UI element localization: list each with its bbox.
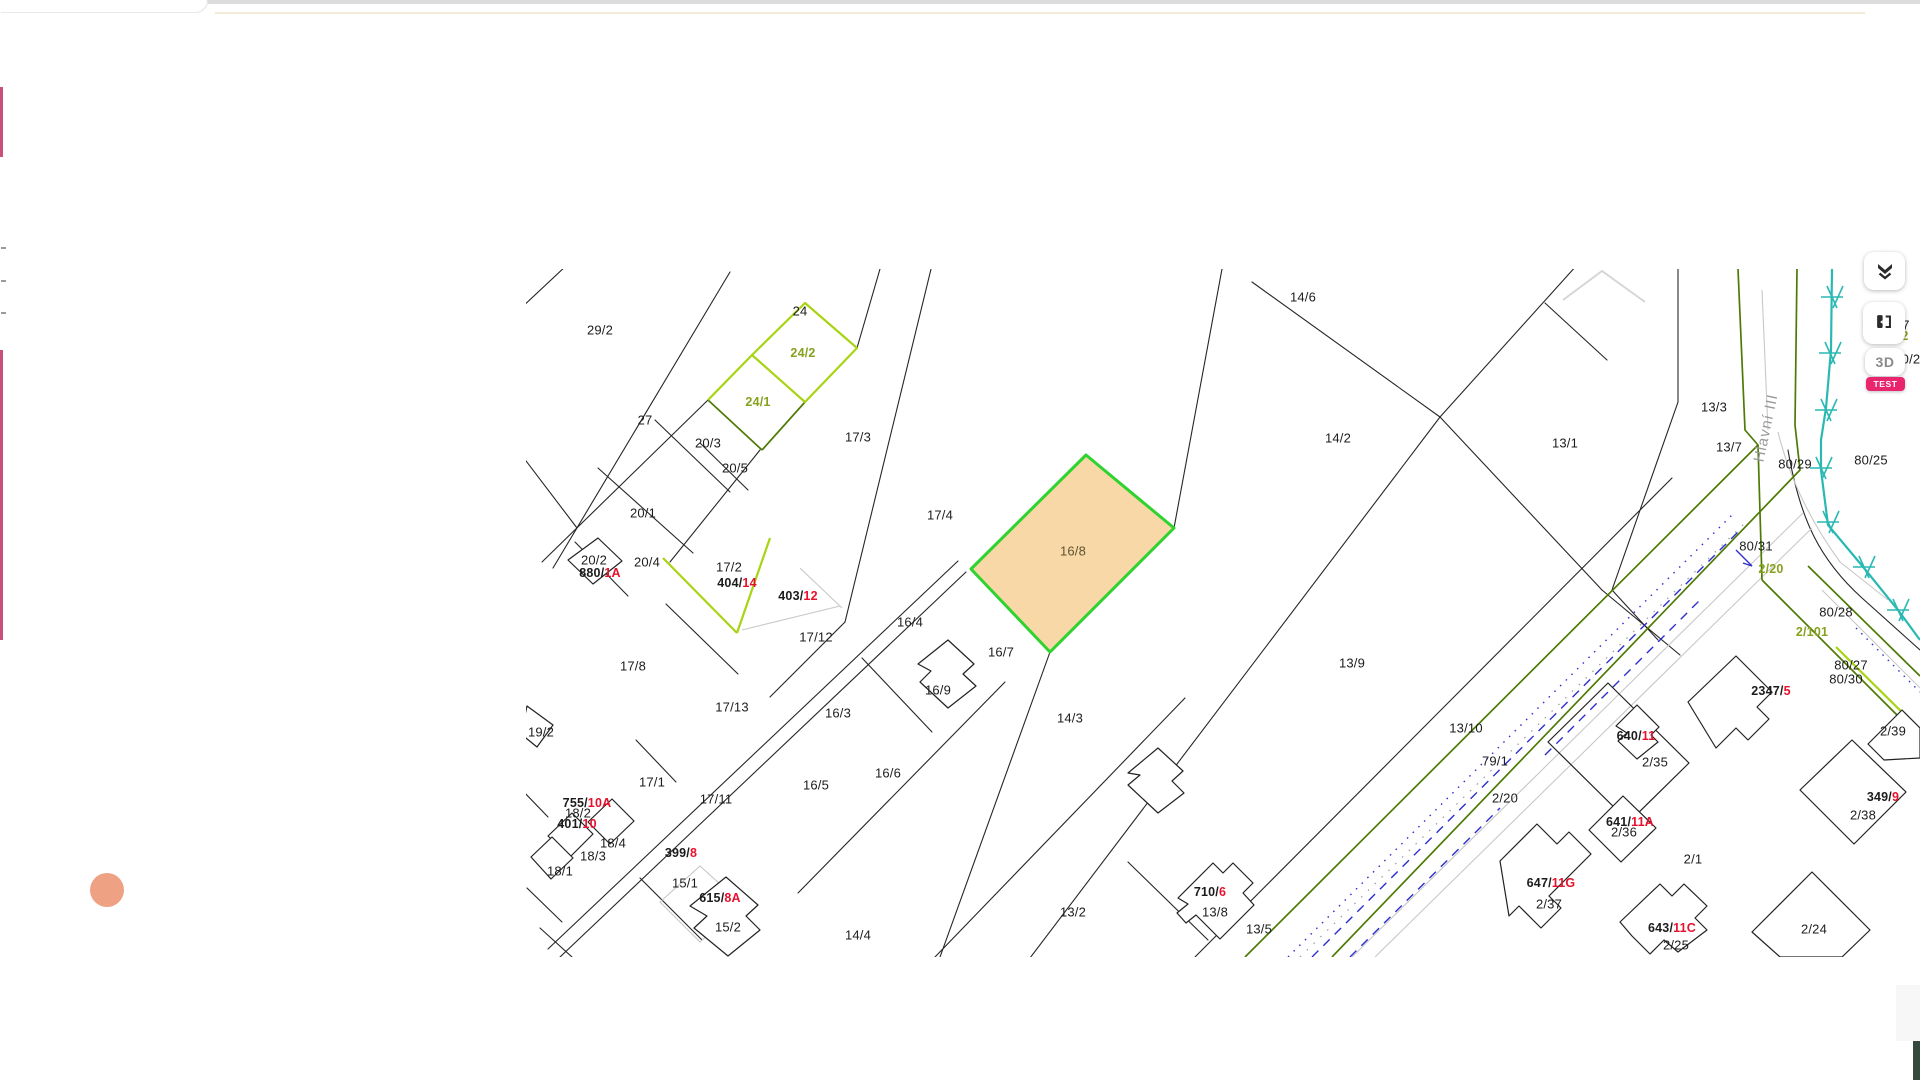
3d-view-button[interactable]: 3D <box>1865 348 1905 376</box>
side-panel-tick <box>1 247 6 249</box>
test-environment-badge: TEST <box>1866 377 1905 391</box>
cadastral-map[interactable]: 29/2242720/320/517/320/117/420/220/417/2… <box>526 269 1920 957</box>
side-panel-tick <box>1 312 6 314</box>
scrollbar-thumb[interactable] <box>1913 1041 1920 1080</box>
map-compare-button[interactable] <box>1863 302 1905 344</box>
side-panel-accent-top[interactable] <box>0 87 3 157</box>
scrollbar-track <box>1896 985 1920 1041</box>
side-panel-tick <box>1 280 6 282</box>
side-panel-accent-bottom[interactable] <box>0 350 3 640</box>
location-marker-dot <box>90 873 124 907</box>
layers-button[interactable] <box>1864 252 1905 290</box>
header-panel-remnant <box>0 0 207 12</box>
selected-parcel-16-8[interactable] <box>971 455 1174 652</box>
header-divider-line <box>215 12 1865 14</box>
map-compare-icon <box>1873 311 1895 336</box>
layers-collapse-icon <box>1873 258 1897 285</box>
page-top-strip <box>205 0 1920 4</box>
map-geometry <box>526 269 1920 957</box>
